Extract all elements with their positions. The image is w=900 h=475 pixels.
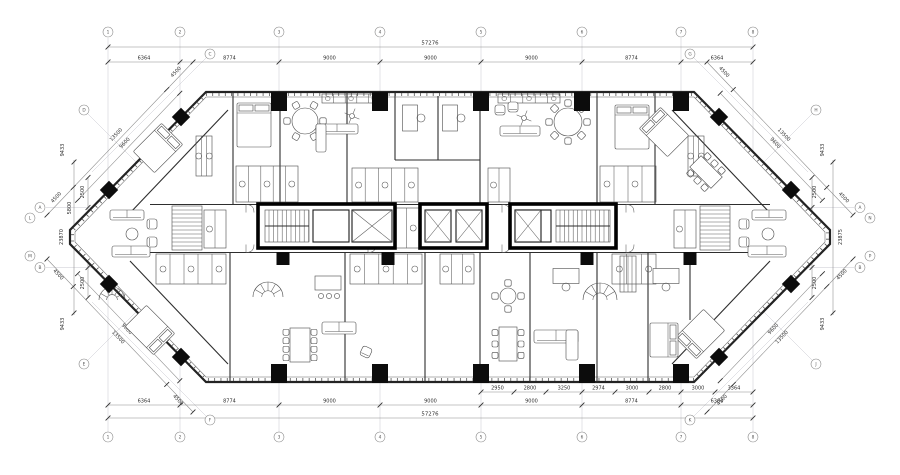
sofa-symbol (566, 330, 578, 360)
column (382, 252, 395, 265)
grid-bubble: B (35, 263, 45, 273)
kitchen-island-symbol (315, 276, 341, 290)
dimension-label: 9433 (60, 318, 66, 331)
grid-bubble-label: 3 (278, 30, 281, 36)
grid-bubble: D (79, 105, 89, 115)
dining-table-symbol (762, 228, 774, 240)
grid-bubble-label: 8 (752, 30, 755, 36)
dimension-label: 13500 (775, 330, 790, 346)
dimension-label: 2500 (812, 186, 818, 199)
grid-bubble-label: 7 (680, 435, 683, 441)
grid-bubble: K (685, 415, 695, 425)
grid-bubble: 7 (676, 432, 686, 442)
grid-bubble-label: C (208, 52, 211, 58)
core-elevators-center (420, 204, 487, 248)
grid-bubble-label: A (39, 205, 42, 211)
dining-table-symbol (126, 228, 138, 240)
grid-bubble: H (811, 105, 821, 115)
dimension-label: 2500 (80, 277, 86, 290)
grid-bubble-label: N (868, 216, 871, 222)
grid-bubble: P (865, 251, 875, 261)
dimension-label: 8774 (625, 56, 638, 62)
sofa-symbol (322, 322, 356, 334)
grid-bubble-label: 1 (107, 435, 110, 441)
grid-bubble-label: 5 (480, 30, 483, 36)
grid-bubble-label: 6 (581, 30, 584, 36)
armchair-symbol (739, 237, 749, 247)
bed-symbol (237, 103, 271, 147)
dimension-label: 9433 (820, 318, 826, 331)
column (372, 364, 388, 383)
grid-bubble-label: G (688, 52, 691, 58)
column (673, 364, 689, 383)
core-block (258, 204, 616, 248)
core-elevator-stair-right (510, 204, 616, 248)
grid-bubble-label: 4 (379, 30, 382, 36)
grid-bubble: A (35, 203, 45, 213)
column (277, 252, 290, 265)
dimension-label: 9000 (323, 56, 336, 62)
grid-bubble-label: B (859, 265, 862, 271)
dimension-label: 9000 (525, 56, 538, 62)
grid-bubble-label: 8 (752, 435, 755, 441)
column (473, 364, 489, 383)
armchair-symbol (739, 219, 749, 229)
dimension-label: 9000 (424, 399, 437, 405)
grid-bubble-label: E (83, 362, 86, 368)
grid-bubble: 4 (375, 27, 385, 37)
dimension-label: 4500 (170, 66, 183, 79)
grid-bubble: J (811, 359, 821, 369)
grid-bubble-label: P (869, 254, 872, 260)
sofa-symbol (112, 246, 150, 257)
dimension-label: 2500 (812, 277, 818, 290)
grid-bubble: 2 (175, 432, 185, 442)
column (271, 364, 287, 383)
column (473, 92, 489, 111)
dimension-label: 8774 (223, 399, 236, 405)
column (574, 92, 590, 111)
dimension-label: 2950 (491, 386, 504, 392)
grid-bubble-label: B (39, 265, 42, 271)
armchair-symbol (147, 219, 157, 229)
grid-bubble: 6 (577, 432, 587, 442)
dimension-label: 23875 (838, 229, 844, 245)
sofa-symbol (752, 210, 786, 220)
column (581, 252, 594, 265)
grid-bubble-label: 1 (107, 30, 110, 36)
dimension-label: 9433 (820, 144, 826, 157)
sofa-symbol (316, 124, 326, 152)
grid-bubble: 1 (103, 27, 113, 37)
floor-plan-canvas: 6364877490009000900087746364572766364877… (0, 0, 900, 475)
dimension-label: 57276 (421, 41, 439, 47)
dimension-label: 4500 (51, 268, 64, 281)
grid-bubble: 5 (476, 27, 486, 37)
column (673, 92, 689, 111)
dimension-label: 2800 (524, 386, 537, 392)
grid-bubble-label: 2 (179, 435, 182, 441)
dimension-label: 5800 (67, 202, 73, 215)
dimension-label: 13500 (109, 127, 124, 143)
grid-bubble-label: 5 (480, 435, 483, 441)
column (372, 92, 388, 111)
dimension-label: 57276 (421, 412, 439, 418)
bed-symbol (650, 323, 678, 357)
grid-bubble: M (25, 251, 35, 261)
grid-bubble: N (865, 213, 875, 223)
grid-bubble: 6 (577, 27, 587, 37)
dimension-label: 13500 (110, 330, 125, 346)
grid-bubble-label: 4 (379, 435, 382, 441)
grid-bubble: F (205, 415, 215, 425)
sofa-symbol (110, 210, 144, 220)
dimension-label: 9000 (424, 56, 437, 62)
grid-bubble: E (79, 359, 89, 369)
grid-bubble: 8 (748, 27, 758, 37)
grid-bubble: G (685, 49, 695, 59)
grid-bubble: C (205, 49, 215, 59)
dimension-label: 4500 (837, 191, 850, 204)
dimension-label: 3000 (626, 386, 639, 392)
grid-bubble-label: 7 (680, 30, 683, 36)
dimension-label: 9433 (60, 144, 66, 157)
grid-bubble-label: K (689, 418, 692, 424)
grid-bubble-label: 2 (179, 30, 182, 36)
dimension-label: 4500 (717, 66, 730, 79)
dimension-label: 9600 (118, 137, 131, 150)
dimension-label: 2500 (80, 186, 86, 199)
armchair-symbol (495, 105, 505, 115)
sofa-symbol (500, 126, 540, 136)
grid-bubble: 3 (274, 432, 284, 442)
dimension-label: 2974 (592, 386, 605, 392)
column (579, 364, 595, 383)
dimension-label: 3250 (558, 386, 571, 392)
grid-bubble: 1 (103, 432, 113, 442)
column (271, 92, 287, 111)
grid-bubble-label: 3 (278, 435, 281, 441)
grid-bubble: A (855, 203, 865, 213)
dimension-label: 6364 (711, 56, 724, 62)
dimension-label: 3364 (728, 386, 741, 392)
dimension-label: 9600 (767, 323, 780, 336)
grid-bubble: 7 (676, 27, 686, 37)
dimension-label: 2800 (659, 386, 672, 392)
dimension-label: 4500 (50, 191, 63, 204)
dimension-label: 9000 (525, 399, 538, 405)
dimension-label: 13500 (776, 127, 791, 143)
grid-bubble-label: J (814, 362, 816, 368)
grid-bubble: 8 (748, 432, 758, 442)
dimension-label: 8774 (223, 56, 236, 62)
core-stair-elevator-left (258, 204, 395, 248)
sofa-symbol (748, 246, 786, 257)
dimension-label: 6364 (138, 56, 151, 62)
grid-bubble: 2 (175, 27, 185, 37)
armchair-symbol (508, 102, 518, 112)
column (684, 252, 697, 265)
dimension-label: 8774 (625, 399, 638, 405)
armchair-symbol (147, 237, 157, 247)
grid-bubble: B (855, 263, 865, 273)
cad-sheet: 6364877490009000900087746364572766364877… (0, 0, 900, 475)
grid-bubble-label: 6 (581, 435, 584, 441)
dimension-label: 23870 (59, 229, 65, 245)
grid-bubble: 3 (274, 27, 284, 37)
grid-bubble: 5 (476, 432, 486, 442)
dimension-label: 3000 (692, 386, 705, 392)
dimension-label: 4500 (835, 268, 848, 281)
grid-bubble: L (25, 213, 35, 223)
grid-bubble-label: A (859, 205, 862, 211)
grid-bubble: 4 (375, 432, 385, 442)
grid-bubble-label: H (814, 108, 817, 114)
dimension-label: 9000 (323, 399, 336, 405)
grid-bubble-label: M (28, 254, 32, 260)
dimension-label: 6364 (138, 399, 151, 405)
dimension-label: 9600 (768, 137, 781, 150)
